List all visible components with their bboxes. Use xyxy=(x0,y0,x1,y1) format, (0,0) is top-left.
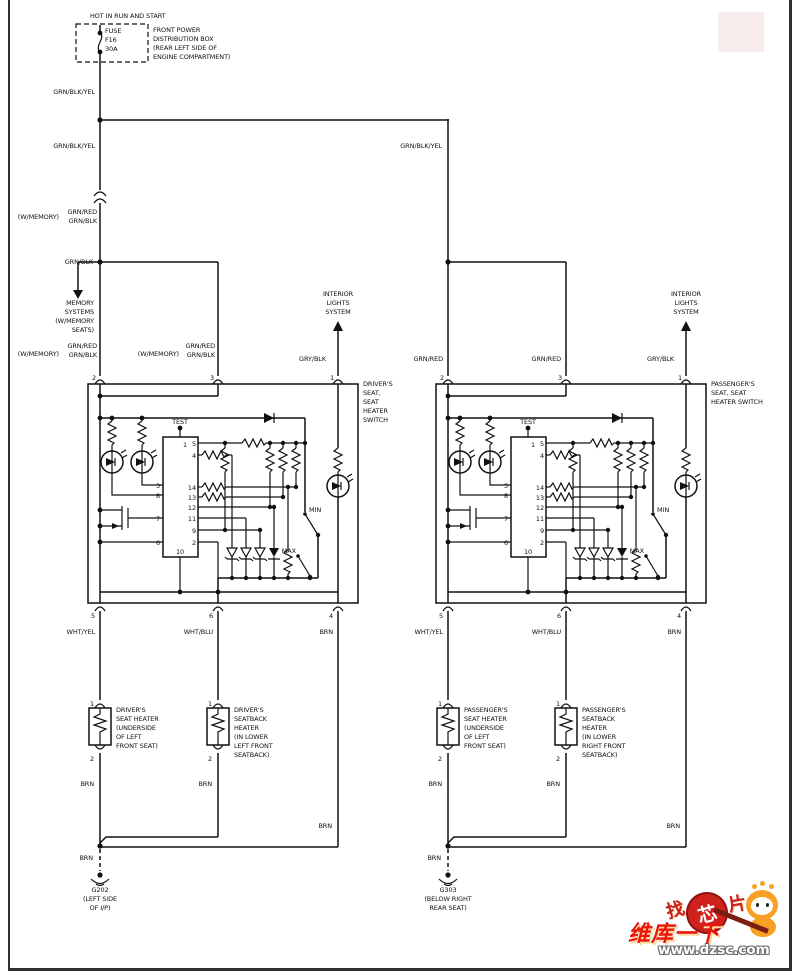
pin-label: 2 xyxy=(92,374,96,382)
ic-pin-label: 9 xyxy=(192,527,196,535)
pin-label: 5 xyxy=(439,612,443,620)
wiring-diagram-page: 2 3 1 5 6 4 xyxy=(0,0,800,978)
wire-label: GRN/RED GRN/BLK xyxy=(175,342,215,360)
wire-label: GRN/RED xyxy=(521,355,561,364)
wire-label: GRN/BLK/YEL xyxy=(35,142,95,151)
wire-label: BRN xyxy=(402,780,442,789)
fuse-id: F16 xyxy=(105,36,135,45)
wire-option-label: (W/MEMORY) xyxy=(134,350,179,359)
ic-pin-label: 8 xyxy=(504,492,508,500)
ic-pin-label: 11 xyxy=(536,515,544,523)
zener-diode-icon xyxy=(253,548,267,564)
dzsc-watermark: 找 芯 片 维库一下 www.dzsc.com xyxy=(628,884,798,972)
transistor-icon xyxy=(100,506,163,530)
max-switch-icon xyxy=(644,554,660,579)
wire-label: BRN xyxy=(641,628,681,637)
ic-pin-label: 7 xyxy=(504,515,508,523)
pin-label: 1 xyxy=(556,700,560,708)
wire-label: GRN/BLK/YEL xyxy=(35,88,95,97)
heating-element-icon xyxy=(94,708,106,745)
driver-switch-label: DRIVER'S SEAT, SEAT HEATER SWITCH xyxy=(363,380,423,425)
pin-label: 1 xyxy=(208,700,212,708)
pin-label: 1 xyxy=(678,374,682,382)
ic-pin-label: 2 xyxy=(192,539,196,547)
interior-lights-note: INTERIOR LIGHTS SYSTEM xyxy=(308,290,368,317)
pin-label: 6 xyxy=(557,612,561,620)
led-icon xyxy=(131,450,157,473)
ground-icon xyxy=(439,872,457,885)
wire-label: GRN/RED GRN/BLK xyxy=(57,342,97,360)
pin-label: 2 xyxy=(90,755,94,763)
pin-label: 6 xyxy=(209,612,213,620)
ic-pin-label: 9 xyxy=(540,527,544,535)
ic-pin-label: 11 xyxy=(188,515,196,523)
ic-pin-label: 6 xyxy=(156,539,160,547)
diode-icon xyxy=(268,548,280,564)
ic-pin-label: 4 xyxy=(540,452,544,460)
memory-branch-arrow-icon xyxy=(73,262,83,299)
passenger-switch: 2 3 1 5 6 4 xyxy=(436,321,706,620)
ic-pin-label: 5 xyxy=(192,440,196,448)
interior-lights-arrow-icon xyxy=(681,321,691,376)
zener-diode-icon xyxy=(573,548,587,564)
fuse-rating: 30A xyxy=(105,45,135,54)
mascot-antenna xyxy=(751,883,757,889)
memory-systems-note: MEMORY SYSTEMS (W/MEMORY SEATS) xyxy=(34,299,94,335)
wire-label: WHT/YEL xyxy=(35,628,95,637)
mascot-antenna xyxy=(768,883,774,889)
wire-label: BRN xyxy=(401,854,441,863)
interior-lights-note: INTERIOR LIGHTS SYSTEM xyxy=(656,290,716,317)
pin-label: 1 xyxy=(330,374,334,382)
ic-pin-label: 3 xyxy=(504,482,508,490)
max-switch-icon xyxy=(296,554,312,579)
ic-pin-label: 5 xyxy=(540,440,544,448)
ic-pin-label: 6 xyxy=(504,539,508,547)
wire-option-label: (W/MEMORY) xyxy=(14,213,59,222)
led-icon xyxy=(101,450,127,473)
led-icon xyxy=(675,474,701,497)
led-icon xyxy=(449,450,475,473)
passenger-switch-label: PASSENGER'S SEAT, SEAT HEATER SWITCH xyxy=(711,380,789,407)
ic-pin-label: 14 xyxy=(188,484,196,492)
pin-label: 1 xyxy=(438,700,442,708)
wire-label: BRN xyxy=(293,628,333,637)
heating-element-icon xyxy=(560,708,572,745)
ic-pin-label: 12 xyxy=(536,504,544,512)
pin-label: 4 xyxy=(677,612,681,620)
wire-label: BRN xyxy=(640,822,680,831)
wire-label: WHT/BLU xyxy=(501,628,561,637)
wire-label: BRN xyxy=(292,822,332,831)
watermark-url: www.dzsc.com xyxy=(658,942,770,958)
fuse-name: FUSE xyxy=(105,27,135,36)
pin-label: 5 xyxy=(91,612,95,620)
wire-option-label: (W/MEMORY) xyxy=(14,350,59,359)
wire-label: BRN xyxy=(520,780,560,789)
min-label: MIN xyxy=(309,506,321,514)
fuse-icon xyxy=(98,25,103,62)
mascot-face xyxy=(751,897,773,915)
wire-label: BRN xyxy=(54,780,94,789)
zener-diode-icon xyxy=(601,548,615,564)
ground-label-g202: G202 (LEFT SIDE OF I/P) xyxy=(60,886,140,913)
ic-pin-label: 13 xyxy=(536,494,544,502)
ic-pin-label: 7 xyxy=(156,515,160,523)
wire-label: BRN xyxy=(172,780,212,789)
max-label: MAX xyxy=(630,547,645,555)
zener-diode-icon xyxy=(239,548,253,564)
wire-label: GRY/BLK xyxy=(634,355,674,364)
ic-pin-label: 8 xyxy=(156,492,160,500)
mascot-eye xyxy=(766,903,769,907)
pin-label: 2 xyxy=(556,755,560,763)
wire-label: GRN/BLK/YEL xyxy=(382,142,442,151)
pin-label: 1 xyxy=(90,700,94,708)
wire-label: WHT/BLU xyxy=(153,628,213,637)
passenger-seat-heater-label: PASSENGER'S SEAT HEATER (UNDERSIDE OF LE… xyxy=(464,706,526,751)
ground-icon xyxy=(91,872,109,885)
interior-lights-arrow-icon xyxy=(333,321,343,376)
power-feed-wiring xyxy=(73,24,566,376)
pin-label: 2 xyxy=(208,755,212,763)
wire-label: GRN/RED GRN/BLK xyxy=(57,208,97,226)
wire-label: WHT/YEL xyxy=(383,628,443,637)
inline-connector-icon xyxy=(94,192,106,203)
pin-label: 4 xyxy=(329,612,333,620)
diode-icon xyxy=(616,548,628,564)
wire-label: GRN/RED xyxy=(403,355,443,364)
ic-pin-label: 14 xyxy=(536,484,544,492)
ground-label-g303: G303 (BELOW RIGHT REAR SEAT) xyxy=(408,886,488,913)
pin-label: 2 xyxy=(440,374,444,382)
min-label: MIN xyxy=(657,506,669,514)
ic-pin-label: 10 xyxy=(176,548,184,556)
led-icon xyxy=(327,474,353,497)
heating-element-icon xyxy=(442,708,454,745)
ic-pin-label: 12 xyxy=(188,504,196,512)
pin-label: 3 xyxy=(210,374,214,382)
hot-in-run-label: HOT IN RUN AND START xyxy=(90,12,220,21)
wire-label: BRN xyxy=(53,854,93,863)
max-label: MAX xyxy=(282,547,297,555)
wire-label: GRN/BLK xyxy=(43,258,93,267)
ic-pin-label: 4 xyxy=(192,452,196,460)
test-point-label: TEST xyxy=(519,418,536,426)
ic-pin-label: 10 xyxy=(524,548,532,556)
driver-seatback-heater-label: DRIVER'S SEATBACK HEATER (IN LOWER LEFT … xyxy=(234,706,294,760)
transistor-icon xyxy=(448,506,511,530)
pin-label: 2 xyxy=(438,755,442,763)
driver-switch: 2 3 1 5 6 4 xyxy=(88,321,358,620)
wire-label: GRY/BLK xyxy=(286,355,326,364)
mascot-eye xyxy=(756,903,759,907)
led-icon xyxy=(479,450,505,473)
ic-pin-label: 13 xyxy=(188,494,196,502)
driver-seat-heater-label: DRIVER'S SEAT HEATER (UNDERSIDE OF LEFT … xyxy=(116,706,176,751)
pin-label: 3 xyxy=(558,374,562,382)
distribution-box-note: FRONT POWER DISTRIBUTION BOX (REAR LEFT … xyxy=(153,26,248,62)
passenger-seatback-heater-label: PASSENGER'S SEATBACK HEATER (IN LOWER RI… xyxy=(582,706,644,760)
zener-diode-icon xyxy=(587,548,601,564)
ic-pin-label: 3 xyxy=(156,482,160,490)
ic-pin-label: 1 xyxy=(531,441,535,449)
ic-pin-label: 2 xyxy=(540,539,544,547)
diode-icon xyxy=(612,413,622,423)
heating-element-icon xyxy=(212,708,224,745)
zener-diode-icon xyxy=(225,548,239,564)
mascot-antenna xyxy=(760,881,765,886)
test-point-label: TEST xyxy=(171,418,188,426)
diode-icon xyxy=(264,413,274,423)
ic-pin-label: 1 xyxy=(183,441,187,449)
